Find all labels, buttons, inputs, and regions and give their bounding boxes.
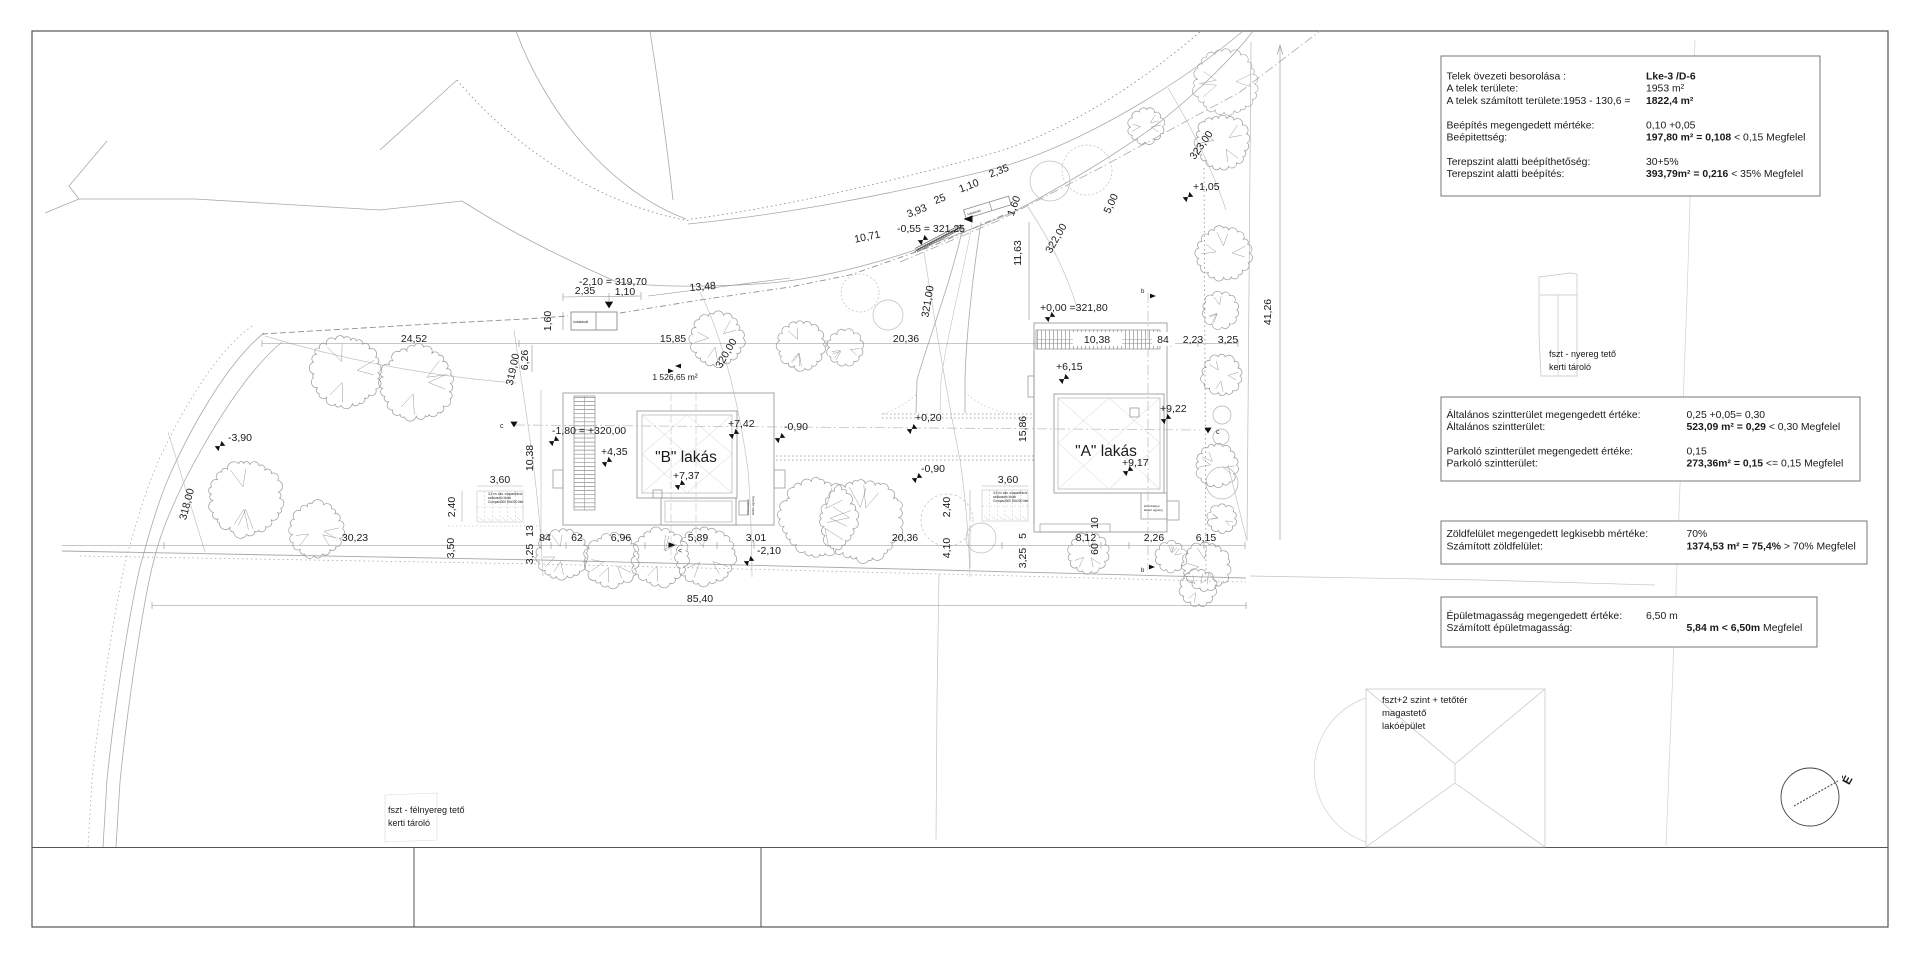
svg-text:-0,55 = 321,25: -0,55 = 321,25: [897, 223, 965, 235]
svg-text:4,10: 4,10: [941, 538, 953, 559]
svg-text:6,50 m: 6,50 m: [1646, 611, 1678, 622]
svg-text:-3,90: -3,90: [228, 432, 252, 444]
svg-text:1822,4 m²: 1822,4 m²: [1646, 96, 1694, 107]
svg-text:0,25 +0,05= 0,30: 0,25 +0,05= 0,30: [1687, 410, 1766, 421]
svg-text:2,23: 2,23: [1183, 334, 1204, 346]
svg-text:Parkoló szintterület megengede: Parkoló szintterület megengedett értéke:: [1447, 446, 1634, 457]
svg-text:3,60: 3,60: [490, 474, 511, 486]
svg-text:30+5%: 30+5%: [1646, 157, 1679, 168]
svg-text:Általános szintterület megenge: Általános szintterület megengedett érték…: [1447, 408, 1641, 421]
svg-text:0,15: 0,15: [1687, 446, 1707, 457]
svg-text:273,36m² = 0,15 <= 0,15 Megf: 273,36m² = 0,15 <= 0,15 Megfelel: [1687, 459, 1844, 470]
svg-text:fszt - félnyereg tető: fszt - félnyereg tető: [388, 805, 465, 815]
svg-text:3,01: 3,01: [746, 532, 767, 544]
svg-text:70%: 70%: [1687, 529, 1708, 540]
svg-text:Hőszivattyú: Hőszivattyú: [746, 499, 750, 515]
svg-text:197,80 m² = 0,108 < 0,15 Megfe: 197,80 m² = 0,108 < 0,15 Megfelel: [1646, 133, 1805, 144]
svg-text:84: 84: [539, 532, 551, 544]
svg-text:+4,35: +4,35: [601, 446, 628, 458]
svg-text:0,10 +0,05: 0,10 +0,05: [1646, 120, 1696, 131]
svg-text:11,63: 11,63: [1012, 240, 1024, 266]
svg-text:20,36: 20,36: [893, 333, 919, 345]
svg-text:3,60: 3,60: [998, 474, 1019, 486]
svg-text:"B" lakás: "B" lakás: [655, 449, 717, 466]
svg-text:1 526,65 m²: 1 526,65 m²: [652, 372, 698, 382]
svg-text:41,26: 41,26: [1262, 299, 1274, 325]
svg-text:Számított épületmagasság:: Számított épületmagasság:: [1447, 623, 1573, 634]
svg-text:2,40: 2,40: [941, 497, 953, 518]
svg-text:84: 84: [1157, 334, 1169, 346]
svg-text:62: 62: [571, 532, 583, 544]
svg-text:+1,05: +1,05: [1193, 181, 1220, 193]
svg-text:+7,42: +7,42: [728, 418, 755, 430]
svg-text:10: 10: [1089, 517, 1101, 529]
svg-text:magastető: magastető: [1382, 708, 1426, 719]
svg-text:Általános szintterület:: Általános szintterület:: [1447, 420, 1546, 433]
svg-text:15,86: 15,86: [1017, 416, 1029, 442]
svg-text:85,40: 85,40: [687, 593, 713, 605]
svg-text:6,96: 6,96: [611, 532, 632, 544]
svg-text:24,52: 24,52: [401, 333, 427, 345]
svg-text:Telek övezeti besorolása :: Telek övezeti besorolása :: [1447, 72, 1567, 83]
svg-text:20,36: 20,36: [892, 532, 918, 544]
svg-text:fszt+2 szint + tetőtér: fszt+2 szint + tetőtér: [1382, 695, 1468, 706]
svg-text:3,25: 3,25: [524, 544, 536, 565]
svg-text:+9,22: +9,22: [1160, 403, 1187, 415]
svg-text:2,40: 2,40: [446, 497, 458, 518]
svg-text:+0,00 =321,80: +0,00 =321,80: [1040, 302, 1108, 314]
svg-text:-2,10: -2,10: [757, 545, 781, 557]
svg-text:60: 60: [1089, 543, 1101, 555]
svg-text:+6,15: +6,15: [1056, 361, 1083, 373]
svg-text:Terepszint alatti beépítés:: Terepszint alatti beépítés:: [1447, 169, 1565, 180]
svg-text:-2,10 = 319,70: -2,10 = 319,70: [579, 276, 647, 288]
svg-text:393,79m² = 0,216 < 35% Megfel: 393,79m² = 0,216 < 35% Megfelel: [1646, 169, 1803, 180]
svg-text:5: 5: [1017, 533, 1029, 539]
svg-text:kerti tároló: kerti tároló: [388, 818, 430, 828]
svg-text:Terepszint alatti beépíthetősé: Terepszint alatti beépíthetőség:: [1447, 157, 1591, 168]
svg-text:c: c: [500, 423, 504, 430]
svg-text:Épületmagasság megengedett ért: Épületmagasság megengedett értéke:: [1447, 609, 1623, 622]
svg-text:+7,37: +7,37: [673, 470, 700, 482]
svg-text:<: <: [678, 548, 682, 555]
svg-text:-0,90: -0,90: [921, 463, 945, 475]
svg-text:10,38: 10,38: [1084, 334, 1110, 346]
svg-text:13,48: 13,48: [689, 280, 716, 294]
svg-text:Számított zöldfelület:: Számított zöldfelület:: [1447, 541, 1543, 552]
svg-text:+0,20: +0,20: [915, 412, 942, 424]
svg-text:15,85: 15,85: [660, 333, 686, 345]
svg-text:-1,80 = +320,00: -1,80 = +320,00: [552, 425, 626, 437]
svg-text:Compact300 80x300 liter: Compact300 80x300 liter: [488, 500, 524, 504]
svg-text:523,09 m² = 0,29 < 0,30 Megfe: 523,09 m² = 0,29 < 0,30 Megfelel: [1687, 422, 1841, 433]
svg-text:3,25: 3,25: [1017, 548, 1029, 569]
svg-text:1,60: 1,60: [542, 311, 554, 332]
svg-text:5,84 m < 6,50m Megfelel: 5,84 m < 6,50m Megfelel: [1687, 623, 1803, 634]
svg-text:"A" lakás: "A" lakás: [1075, 443, 1137, 460]
svg-text:Beépítés megengedett mértéke:: Beépítés megengedett mértéke:: [1447, 120, 1595, 131]
svg-text:fszt - nyereg tető: fszt - nyereg tető: [1549, 349, 1616, 359]
svg-text:Beépitettség:: Beépitettség:: [1447, 133, 1508, 144]
svg-text:kültéri egység: kültéri egység: [751, 496, 755, 515]
svg-text:5,89: 5,89: [688, 532, 709, 544]
svg-text:3,50: 3,50: [445, 538, 457, 559]
svg-text:30,23: 30,23: [342, 532, 368, 544]
svg-text:kukatároló: kukatároló: [574, 320, 589, 324]
svg-text:1374,53 m² = 75,4% > 70% Megfe: 1374,53 m² = 75,4% > 70% Megfelel: [1687, 541, 1856, 552]
svg-text:lakóépület: lakóépület: [1382, 721, 1426, 732]
svg-text:Compact300 80x300 liter: Compact300 80x300 liter: [993, 499, 1029, 503]
svg-text:10,38: 10,38: [524, 445, 536, 471]
svg-text:3,25: 3,25: [1218, 334, 1239, 346]
svg-text:13: 13: [524, 525, 536, 537]
svg-text:Lke-3 /D-6: Lke-3 /D-6: [1646, 72, 1696, 83]
svg-text:1953 m²: 1953 m²: [1646, 84, 1685, 95]
svg-text:2,26: 2,26: [1144, 532, 1165, 544]
svg-text:A telek területe:: A telek területe:: [1447, 84, 1519, 95]
svg-text:-0,90: -0,90: [784, 421, 808, 433]
svg-text:8,12: 8,12: [1076, 532, 1097, 544]
svg-text:A telek számított területe:195: A telek számított területe:1953 - 130,6 …: [1447, 96, 1631, 107]
svg-text:Zöldfelület megengedett legkis: Zöldfelület megengedett legkisebb mérték…: [1447, 529, 1649, 540]
svg-text:kültéri egység: kültéri egység: [1144, 508, 1163, 512]
svg-text:kerti tároló: kerti tároló: [1549, 362, 1591, 372]
svg-text:Parkoló szintterület:: Parkoló szintterület:: [1447, 459, 1538, 470]
svg-text:6,15: 6,15: [1196, 532, 1217, 544]
